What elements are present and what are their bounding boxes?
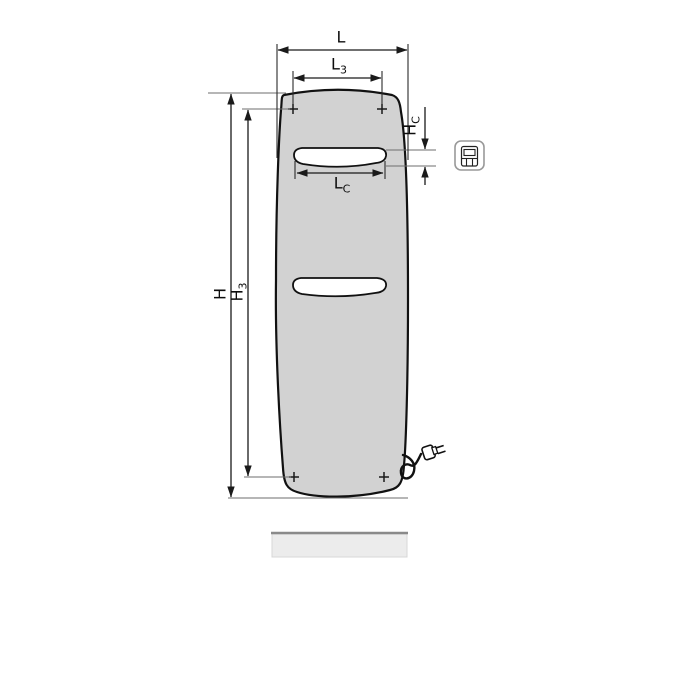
label-slot-width-LC: LC <box>334 175 351 194</box>
plug-prong-bottom <box>438 451 446 453</box>
label-overall-width-L: L <box>337 29 346 48</box>
label-H3-main: H <box>227 289 246 301</box>
radiator-dimension-drawing: L L3 LC H H3 HC <box>0 0 700 700</box>
label-slot-height-HC: HC <box>402 116 421 136</box>
grip-slot-bottom <box>293 278 386 296</box>
label-LC-sub: C <box>343 183 351 196</box>
label-H3-sub: 3 <box>237 282 250 289</box>
label-L-main: L <box>337 27 346 46</box>
pictogram-slot <box>464 150 475 156</box>
floor-bar-body <box>272 534 407 557</box>
label-L3-main: L <box>331 54 340 73</box>
power-plug-icon <box>421 441 446 460</box>
drawing-svg <box>0 0 700 700</box>
label-mounting-width-L3: L3 <box>331 56 347 75</box>
label-mounting-height-H3: H3 <box>229 282 248 301</box>
plug-prong-top <box>436 445 444 447</box>
label-HC-sub: C <box>410 116 423 124</box>
label-L3-sub: 3 <box>340 64 347 77</box>
grip-slot-top <box>294 148 386 167</box>
label-LC-main: L <box>334 173 343 192</box>
label-HC-main: H <box>400 124 419 136</box>
floor-bar <box>271 533 408 557</box>
radiator-pictogram-icon <box>455 141 484 170</box>
